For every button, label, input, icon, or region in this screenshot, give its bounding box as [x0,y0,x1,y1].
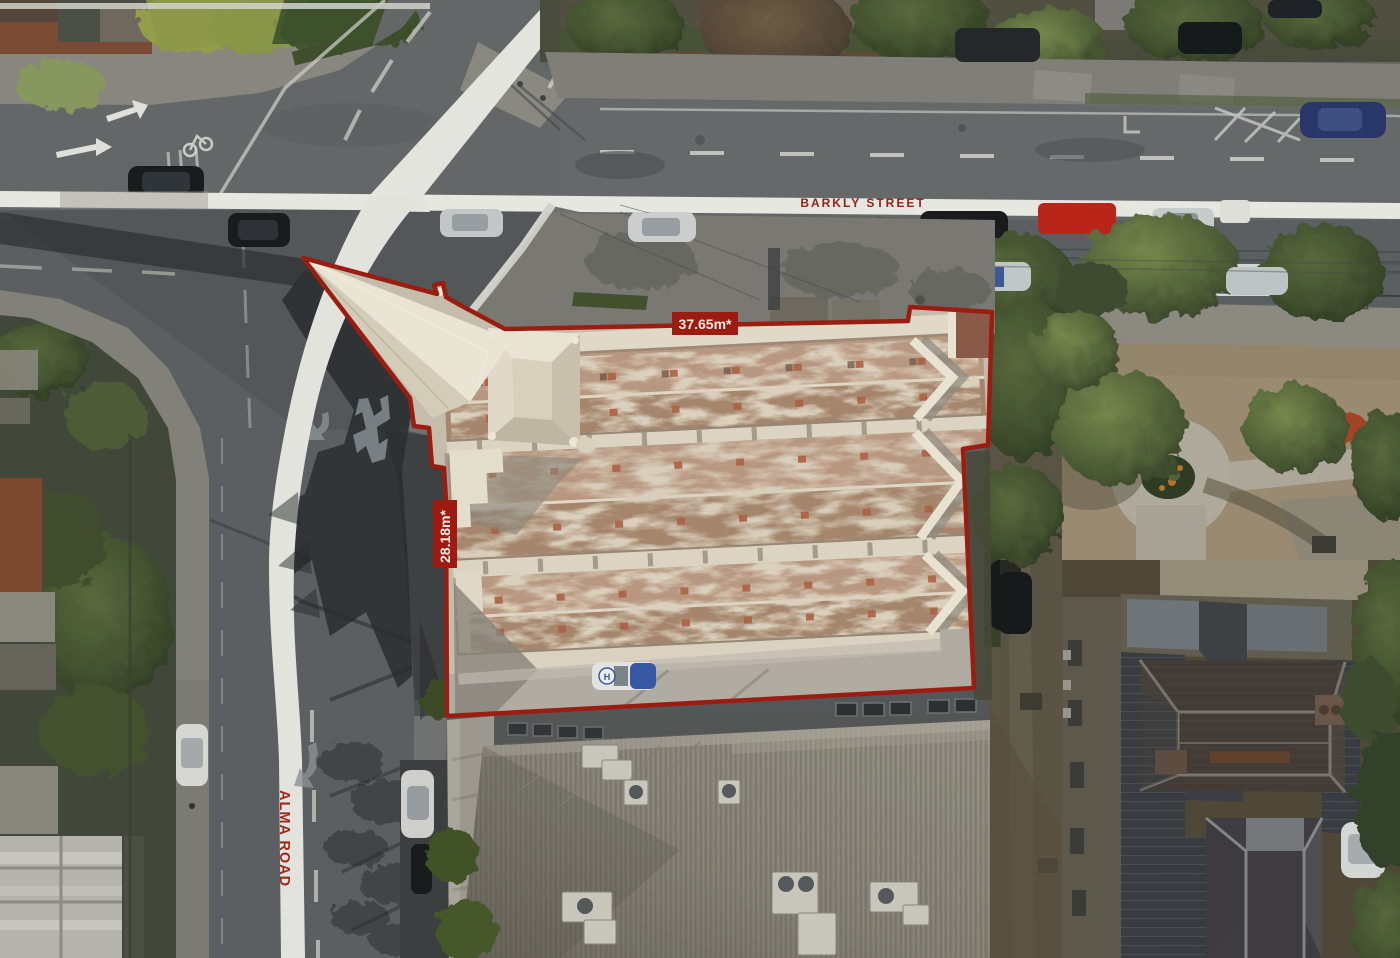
svg-text:BARKLY STREET: BARKLY STREET [800,196,925,210]
svg-text:28.18m*: 28.18m* [437,510,453,563]
svg-text:37.65m*: 37.65m* [679,316,732,332]
